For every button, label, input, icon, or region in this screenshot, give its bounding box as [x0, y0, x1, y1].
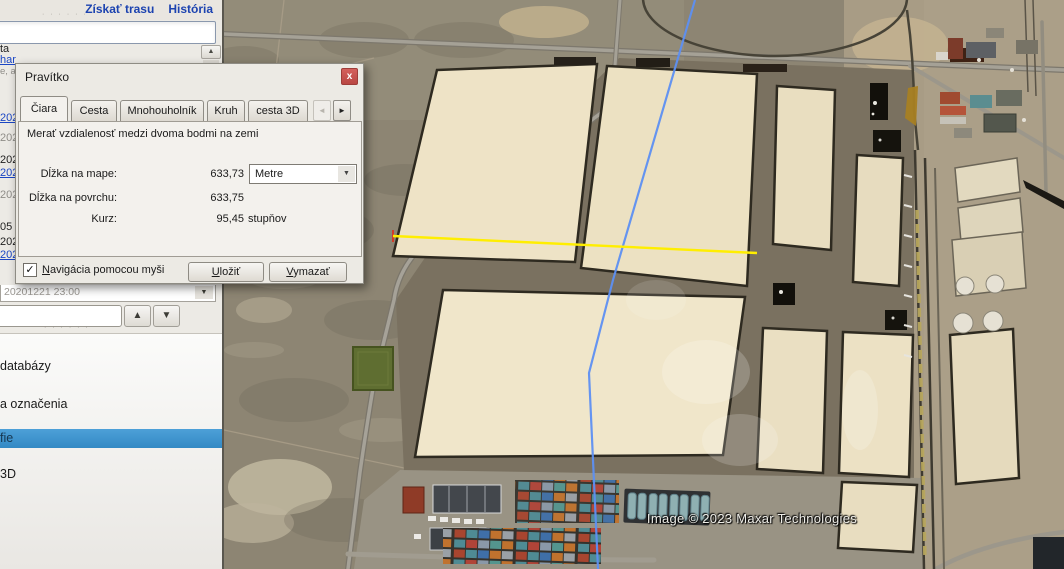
scroll-up-icon: ▲ — [208, 48, 215, 55]
dropdown-arrow-icon: ▼ — [338, 166, 355, 182]
history-link[interactable]: História — [168, 2, 213, 16]
get-directions-link[interactable]: Získať trasu — [85, 2, 154, 16]
splitter-handle-icon[interactable]: · · · · · · — [42, 11, 88, 18]
tab-scroll-right-icon[interactable]: ► — [333, 100, 351, 121]
tab-line[interactable]: Čiara — [20, 96, 68, 121]
mouse-navigation-checkbox[interactable]: ✓ — [23, 263, 37, 277]
arrow-up-icon: ▲ — [133, 310, 143, 321]
arrow-down-icon: ▼ — [162, 310, 172, 321]
ruler-dialog: Pravítko x Čiara Cesta Mnohouholník Kruh… — [15, 63, 364, 284]
sidebar-topbar: · · · · · · Získať trasu História — [0, 0, 222, 20]
scrollbar-up-button[interactable]: ▲ — [201, 45, 221, 59]
ground-length-label: Dĺžka na povrchu: — [27, 192, 117, 204]
layer-item-3d-buildings[interactable]: 3D — [0, 467, 222, 481]
tab-content: Merať vzdialenosť medzi dvoma bodmi na z… — [18, 121, 362, 257]
heading-unit: stupňov — [248, 213, 287, 225]
previous-result-button[interactable]: ▲ — [124, 305, 151, 327]
dialog-title[interactable]: Pravítko — [25, 70, 69, 84]
layers-panel: databázy a označenia fie 3D — [0, 333, 222, 569]
heading-value: 95,45 — [119, 213, 244, 225]
measure-description: Merať vzdialenosť medzi dvoma bodmi na z… — [27, 128, 258, 140]
search-input[interactable] — [0, 21, 216, 44]
imagery-date-combo[interactable]: 20201221 23:00 ▼ — [0, 285, 216, 302]
heading-label: Kurz: — [27, 213, 117, 225]
next-result-button[interactable]: ▼ — [153, 305, 180, 327]
layer-item-databases[interactable]: databázy — [0, 359, 222, 373]
close-icon: x — [347, 71, 353, 82]
check-icon: ✓ — [25, 264, 34, 276]
layer-item-photos-selected[interactable]: fie — [0, 429, 222, 448]
google-earth-window: Image © 2023 Maxar Technologies · · · · … — [0, 0, 1064, 569]
splitter-handle-icon[interactable]: · · · · · · — [44, 324, 90, 331]
green-field — [353, 347, 393, 390]
imagery-date-value: 20201221 23:00 — [4, 286, 80, 298]
ruler-tabs: Čiara Cesta Mnohouholník Kruh cesta 3D ◄… — [20, 96, 351, 121]
dialog-close-button[interactable]: x — [341, 68, 358, 85]
tab-circle[interactable]: Kruh — [207, 100, 245, 121]
container-yard — [515, 480, 619, 523]
mouse-navigation-label: Navigácia pomocou myši — [42, 264, 164, 276]
unit-select[interactable]: Metre ▼ — [249, 164, 357, 184]
tab-path[interactable]: Cesta — [71, 100, 117, 121]
ground-length-value: 633,75 — [119, 192, 244, 204]
unit-select-value: Metre — [255, 168, 283, 180]
layer-item-borders-labels[interactable]: a označenia — [0, 397, 222, 411]
tab-3d-path[interactable]: cesta 3D — [248, 100, 308, 121]
clear-button[interactable]: Vymazať — [269, 262, 347, 282]
map-length-value: 633,73 — [119, 168, 244, 180]
map-attribution: Image © 2023 Maxar Technologies — [632, 511, 872, 526]
save-button[interactable]: Uložiť — [188, 262, 264, 282]
combo-arrow-icon: ▼ — [195, 286, 213, 299]
map-length-label: Dĺžka na mape: — [27, 168, 117, 180]
tab-scroll-left-icon[interactable]: ◄ — [313, 100, 331, 121]
tab-polygon[interactable]: Mnohouholník — [120, 100, 204, 121]
